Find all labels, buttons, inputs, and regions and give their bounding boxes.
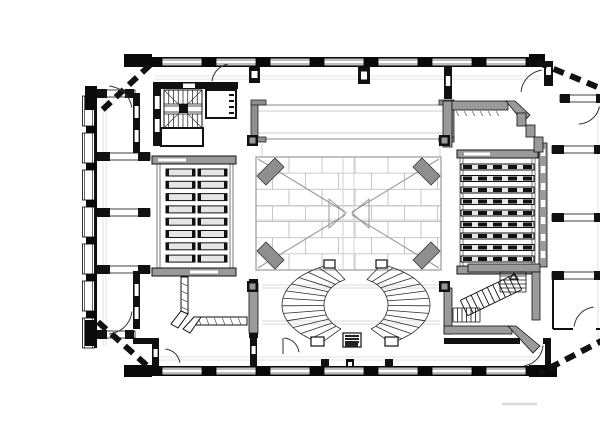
nw-room-wall	[133, 93, 140, 153]
door-arc-se-room	[574, 307, 594, 327]
column-pier-atrium-br-core	[442, 284, 448, 290]
lobby-desk-stripes	[345, 335, 359, 343]
left-partition-2-cap-b	[138, 208, 150, 217]
se-stair-diagonal-flight	[460, 274, 521, 315]
sw-room-wall	[133, 271, 140, 329]
ne-balustrade-hatch	[456, 111, 499, 116]
ne-pier-wall-slot	[446, 76, 451, 86]
corner-block-nw-side	[85, 86, 97, 110]
top-pier-1-slot	[252, 71, 258, 78]
sw-room-wall-slot-1	[135, 284, 139, 296]
stair-core-top-bar	[153, 82, 238, 89]
sw-pier-below-slot	[252, 346, 256, 354]
bottom-pier-1	[321, 359, 329, 366]
stair-core-top-bar-slot	[183, 84, 195, 89]
se-lower-wall-vertical	[545, 338, 551, 366]
right-partition-3-cap-b	[594, 271, 600, 280]
nw-room-partition-cap-b	[125, 89, 134, 98]
horseshoe-stair-fan-right	[367, 265, 430, 343]
corner-block-sw-bottom	[124, 365, 152, 377]
ne-step-wall-1	[517, 113, 526, 126]
corner-block-sw-side	[85, 320, 97, 346]
column-pier-atrium-tl-core	[250, 138, 256, 144]
bottom-pier-3	[385, 359, 393, 367]
stair-core-lower-room	[161, 128, 203, 146]
atrium-corner-wedge-tr	[413, 158, 440, 185]
lobby-desk-base	[345, 343, 358, 347]
column-pier-atrium-bl-core	[250, 284, 256, 290]
floor-plan-drawing	[40, 16, 600, 416]
sw-room-lower-wall-slot	[154, 349, 158, 357]
se-stair-wall-top	[468, 264, 540, 272]
right-partition-3-cap-a	[552, 271, 564, 280]
right-room-bench-rows	[461, 164, 534, 262]
windows-left	[83, 96, 95, 348]
left-room-top-wall-slot	[158, 159, 186, 162]
horseshoe-newel-top-right	[376, 260, 387, 268]
ne-step-wall-3	[534, 137, 543, 152]
door-arc-sw-inner	[165, 349, 179, 363]
se-lower-wall	[444, 338, 520, 344]
left-partition-2-cap-a	[97, 208, 110, 217]
door-arc-ne-1	[521, 70, 542, 92]
left-partition-3-cap-a	[97, 265, 110, 274]
roof-opening-bracket-left-arm-top	[251, 100, 266, 105]
sw-room-partition-cap-b	[125, 330, 134, 339]
atrium-border	[256, 157, 441, 270]
top-pier-2-slot	[361, 72, 367, 80]
sw-balustrade-diagonal-1	[171, 311, 188, 328]
atrium-brick-grid	[256, 157, 441, 270]
left-room-table-rows	[166, 169, 227, 262]
left-partition-1-cap-b	[138, 152, 150, 161]
sw-room-wall-slot-2	[135, 307, 139, 319]
stair-core-left-wall-slot-1	[155, 96, 160, 109]
atrium-corner-wedge-bl	[257, 242, 284, 269]
right-partition-1-cap-b	[594, 145, 600, 154]
ne-balustrade-horizontal	[452, 101, 508, 110]
right-partition-2-cap-a	[552, 213, 564, 222]
right-partition-2-cap-b	[594, 213, 600, 222]
ne-step-wall-2	[526, 125, 535, 137]
stair-core-center-block	[179, 104, 188, 113]
door-arc-bottom-center	[284, 338, 299, 352]
horseshoe-newel-top-left	[324, 260, 335, 268]
se-stair-wall-right	[532, 272, 540, 320]
ne-corner-partition-cap-a	[560, 94, 570, 103]
horseshoe-newel-bottom-right	[385, 337, 398, 346]
nw-room-wall-slot-1	[135, 106, 139, 118]
horseshoe-newel-bottom-left	[311, 337, 324, 346]
nw-room-wall-slot-2	[135, 130, 139, 142]
door-arc-ne-2	[579, 107, 600, 124]
nw-room-partition-cap-a	[97, 89, 107, 98]
ne-corner-pier-slot	[546, 67, 551, 75]
se-stair-wall-bottom	[444, 326, 512, 334]
floor-plan-figure	[40, 16, 600, 416]
horseshoe-stair-fan-left	[282, 265, 345, 343]
right-room-top-wall-slot	[464, 153, 490, 156]
atrium-corner-wedge-br	[413, 242, 440, 269]
windows-top	[162, 58, 526, 66]
ne-corner-partition-cap-b	[596, 94, 600, 103]
atrium-corner-wedge-tl	[257, 158, 284, 185]
left-room-bottom-wall-slot	[190, 271, 218, 274]
se-stair-flight-lower	[453, 308, 480, 322]
left-partition-1-cap-a	[97, 152, 110, 161]
roof-opening-outline	[252, 105, 453, 139]
sw-room-partition-cap-a	[97, 330, 107, 339]
sw-balustrade-horizontal	[194, 317, 247, 325]
stair-core-left-wall-slot-2	[155, 119, 160, 132]
windows-bottom	[162, 367, 526, 375]
right-partition-1-cap-a	[552, 145, 564, 154]
column-pier-atrium-tr-core	[442, 138, 448, 144]
